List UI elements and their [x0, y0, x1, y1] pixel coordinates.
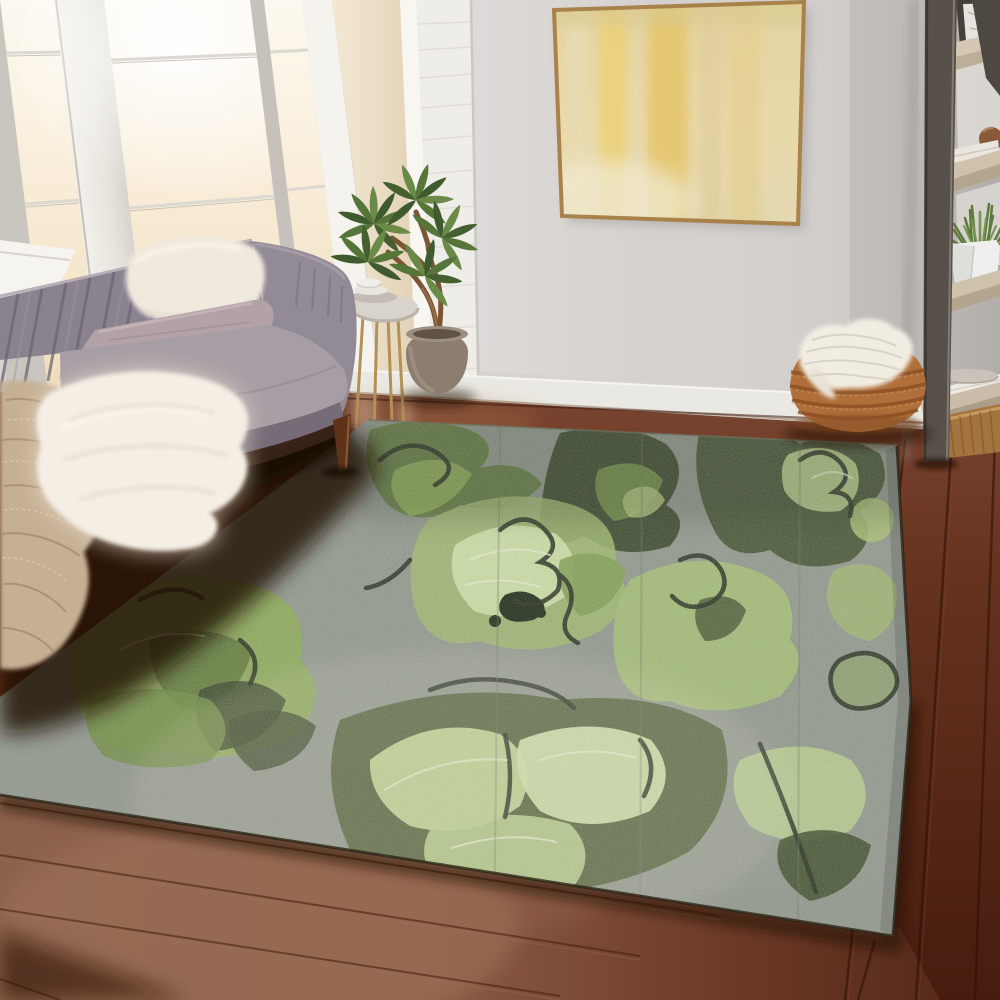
living-room-photo	[0, 0, 1000, 1000]
scene-canvas	[0, 0, 1000, 1000]
